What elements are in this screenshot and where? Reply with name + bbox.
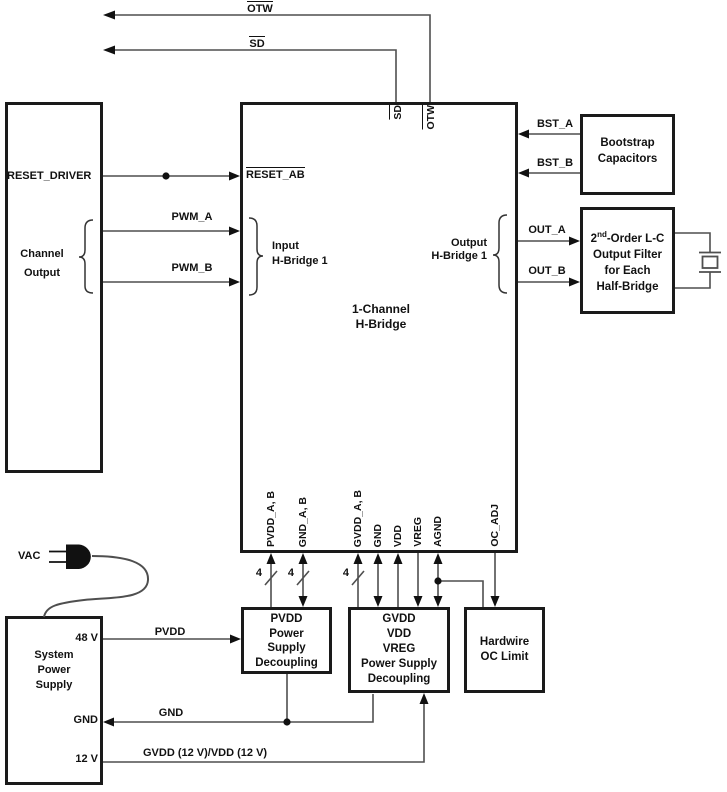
pvdd-ab-up-arrowhead bbox=[267, 553, 276, 564]
vdd-up-arrowhead bbox=[394, 553, 403, 564]
output-hbridge-label: Output H-Bridge 1 bbox=[410, 237, 487, 262]
bst-a-arrowhead bbox=[518, 130, 529, 139]
otw-pin-label: OTW bbox=[422, 105, 438, 130]
pvdd-ab-pin-label: PVDD_A, B bbox=[264, 491, 278, 547]
ac-plug-icon bbox=[49, 545, 91, 570]
vac-label: VAC bbox=[18, 550, 40, 563]
otw-feedback-label: OTW bbox=[230, 1, 290, 16]
sd-arrowhead bbox=[103, 46, 115, 55]
input-brace bbox=[249, 218, 263, 295]
speaker-icon bbox=[699, 253, 721, 273]
sd-feedback-label: SD bbox=[227, 36, 287, 51]
agnd-up-arrowhead bbox=[434, 553, 443, 564]
gnd-ab-down-arrowhead bbox=[299, 596, 308, 607]
pwm-b-arrowhead bbox=[229, 278, 240, 287]
agnd-down-arrowhead bbox=[434, 596, 443, 607]
gnd-junction-dot bbox=[283, 718, 290, 725]
out-a-label: OUT_A bbox=[522, 224, 572, 237]
h-bridge-title: 1-Channel H-Bridge bbox=[301, 302, 461, 332]
gvdd-vdd-net-label: GVDD (12 V)/VDD (12 V) bbox=[143, 747, 267, 760]
wire-layer bbox=[0, 0, 727, 792]
reset-ab-label: RESET_AB bbox=[246, 167, 305, 182]
out-b-arrowhead bbox=[569, 278, 580, 287]
pwm-a-arrowhead bbox=[229, 227, 240, 236]
gvdd-ab-pin-label: GVDD_A, B bbox=[351, 490, 365, 547]
vreg-pin-label: VREG bbox=[411, 517, 425, 547]
gnd-ab-up-arrowhead bbox=[299, 553, 308, 564]
wire-sd-feedback bbox=[114, 50, 396, 102]
out-b-label: OUT_B bbox=[522, 265, 572, 278]
ac-cable bbox=[44, 556, 148, 617]
agnd-pin-label: AGND bbox=[431, 516, 445, 547]
12v-net-arrowhead bbox=[420, 693, 429, 704]
reset-junction-dot bbox=[162, 172, 169, 179]
agnd-junction-dot bbox=[434, 577, 441, 584]
bst-b-label: BST_B bbox=[530, 157, 580, 170]
psu-12v-label: 12 V bbox=[40, 753, 98, 766]
reset-driver-label: RESET_DRIVER bbox=[7, 170, 103, 183]
gnd-net-label: GND bbox=[141, 707, 201, 720]
wire-otw-feedback bbox=[114, 15, 430, 102]
pvdd-net-arrowhead bbox=[230, 635, 241, 644]
input-hbridge-label: Input H-Bridge 1 bbox=[272, 239, 328, 269]
wire-agnd-pin bbox=[438, 563, 483, 607]
bus-width-marker: 4 bbox=[280, 567, 294, 580]
bst-a-label: BST_A bbox=[530, 118, 580, 131]
vreg-down-arrowhead bbox=[414, 596, 423, 607]
gnd-net-arrowhead bbox=[103, 718, 114, 727]
oc-adj-down-arrowhead bbox=[491, 596, 500, 607]
system-power-supply-label: System Power Supply bbox=[12, 648, 96, 693]
reset-arrowhead bbox=[229, 172, 240, 181]
bus-width-marker: 4 bbox=[248, 567, 262, 580]
gnd-up-arrowhead bbox=[374, 553, 383, 564]
vdd-pin-label: VDD bbox=[391, 525, 405, 547]
gnd-down-arrowhead bbox=[374, 596, 383, 607]
pvdd-net-label: PVDD bbox=[135, 626, 205, 639]
bus-width-marker: 4 bbox=[335, 567, 349, 580]
gnd-pin-label: GND bbox=[371, 524, 385, 547]
out-a-arrowhead bbox=[569, 237, 580, 246]
output-brace bbox=[493, 215, 507, 293]
gvdd-ab-up-arrowhead bbox=[354, 553, 363, 564]
sd-pin-label: SD bbox=[389, 105, 405, 120]
pwm-b-label: PWM_B bbox=[166, 262, 218, 275]
channel-output-brace bbox=[79, 220, 93, 293]
oc-adj-pin-label: OC_ADJ bbox=[488, 504, 502, 547]
channel-output-label: Channel Output bbox=[10, 245, 74, 283]
pwm-a-label: PWM_A bbox=[166, 211, 218, 224]
otw-arrowhead bbox=[103, 11, 115, 20]
gnd-ab-pin-label: GND_A, B bbox=[296, 497, 310, 547]
psu-48v-label: 48 V bbox=[40, 632, 98, 645]
psu-gnd-label: GND bbox=[40, 714, 98, 727]
block-diagram: Bootstrap Capacitors 2nd-Order L-C Outpu… bbox=[0, 0, 727, 792]
bst-b-arrowhead bbox=[518, 169, 529, 178]
